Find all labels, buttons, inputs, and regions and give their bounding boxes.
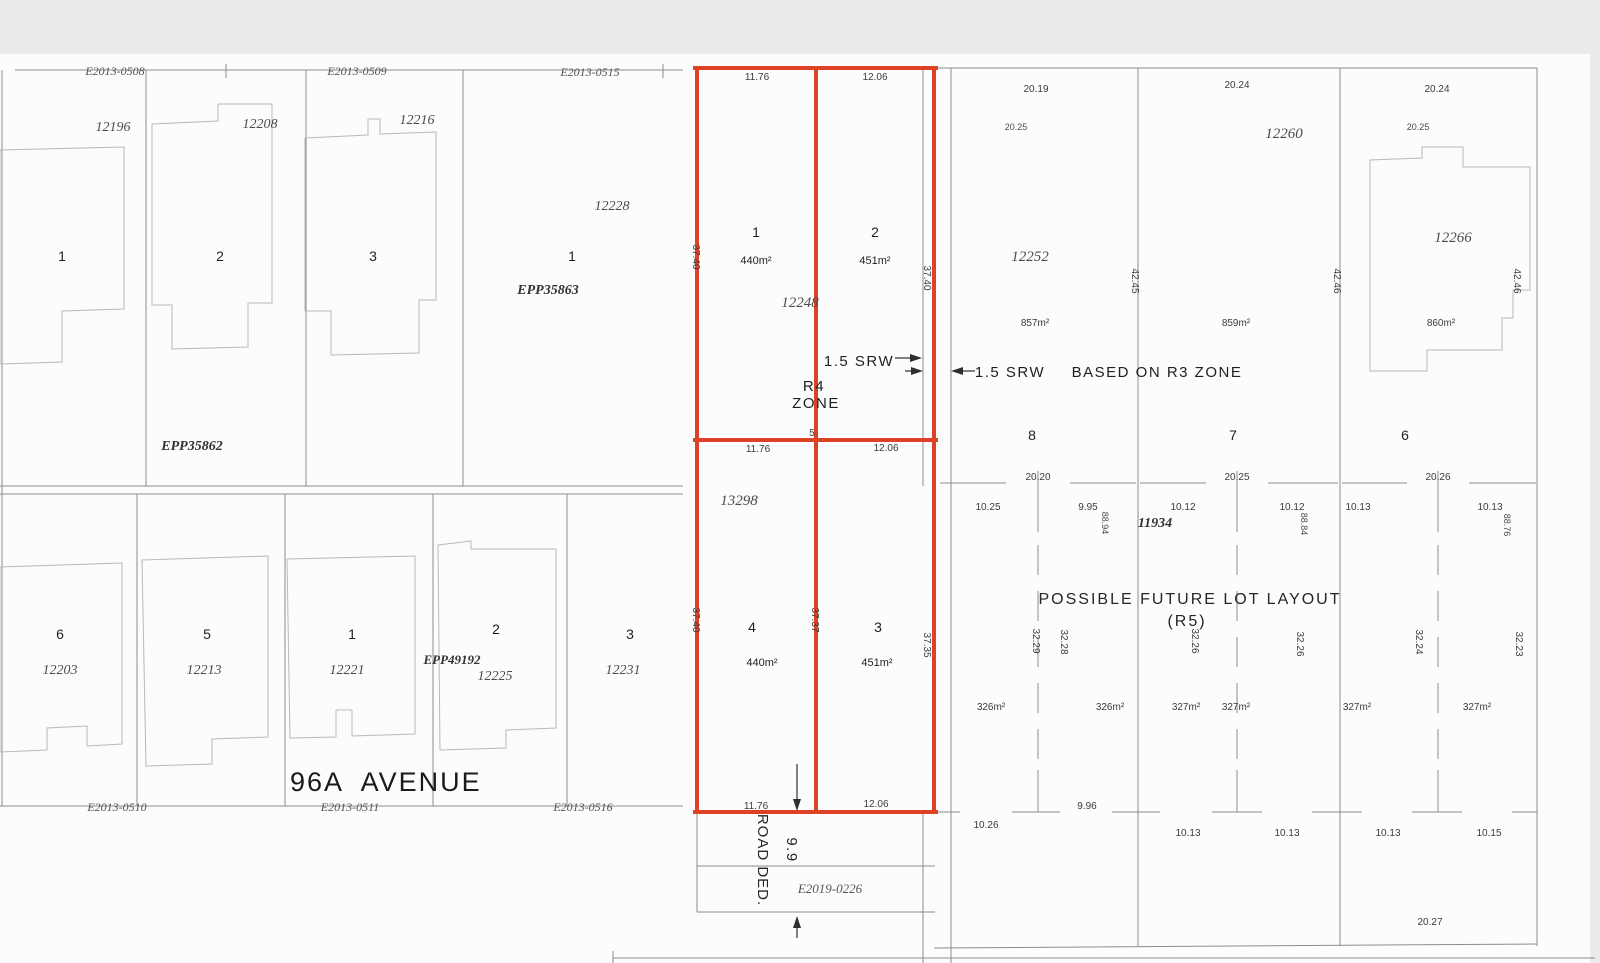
lot-number: 2	[492, 621, 500, 637]
lot-address: 12221	[330, 663, 365, 678]
lot-address-13298: 13298	[720, 493, 758, 509]
lot-area: 857m²	[1021, 318, 1050, 329]
dim-front: 20.19	[1023, 84, 1048, 95]
dim-front: 20.24	[1424, 84, 1449, 95]
lot-address: 12231	[606, 663, 641, 678]
dim-width: 11.76	[745, 72, 770, 83]
lot-address: 12203	[43, 663, 78, 678]
corner-mark: 5	[809, 428, 815, 439]
lot-area: 451m²	[861, 657, 893, 669]
dim-bottom: 10.13	[1274, 828, 1299, 839]
lot-area: 327m²	[1172, 702, 1201, 713]
dim-side: 88.84	[1299, 513, 1309, 536]
dim-half: 10.12	[1170, 502, 1195, 513]
lot-address-11934: 11934	[1138, 516, 1172, 531]
lot-area: 440m²	[746, 657, 778, 669]
lot-address-12248: 12248	[781, 295, 819, 311]
lot-area: 327m²	[1343, 702, 1372, 713]
dim-depth: 42.46	[1331, 268, 1342, 293]
lot-address: 12260	[1265, 126, 1303, 142]
dim-depth: 37.40	[690, 607, 701, 632]
plan-ref-road: E2019-0226	[797, 881, 863, 896]
dim-width: 11.76	[746, 444, 771, 455]
dim-half: 10.12	[1279, 502, 1304, 513]
plan-ref-bottom-center: E2013-0511	[320, 800, 379, 814]
dim-top: 20.26	[1425, 472, 1450, 483]
lot-address: 12228	[595, 199, 630, 214]
lot-area: 859m²	[1222, 318, 1251, 329]
zone-label-zone: ZONE	[792, 395, 840, 412]
dim-width: 12.06	[862, 72, 887, 83]
dim-depth: 42.46	[1511, 268, 1522, 293]
dim-side: 88.76	[1502, 514, 1512, 537]
dim-depth: 37.40	[690, 244, 701, 269]
lot-address: 12225	[478, 669, 513, 684]
zone-note-r3: BASED ON R3 ZONE	[1072, 364, 1243, 381]
dim-half: 10.13	[1477, 502, 1502, 513]
lot-number: 7	[1229, 427, 1237, 443]
plan-ref-top-left: E2013-0508	[84, 64, 144, 78]
dim-depth: 32.28	[1058, 629, 1069, 654]
lot-number: 2	[216, 248, 224, 264]
plan-label-epp35863: EPP35863	[516, 283, 578, 298]
lot-number: 6	[56, 626, 64, 642]
road-width-dim: 9.9	[783, 837, 800, 862]
lot-address: 12196	[96, 120, 131, 135]
dim-depth: 42.45	[1129, 268, 1140, 293]
srw-label-left: 1.5 SRW	[824, 353, 894, 370]
plan-label-epp35862: EPP35862	[160, 439, 222, 454]
dim-depth: 32.24	[1413, 629, 1424, 654]
page-margin-top	[0, 0, 1600, 54]
dim-width: 12.06	[873, 443, 898, 454]
dim-half: 10.13	[1345, 502, 1370, 513]
dim-width: 12.06	[863, 799, 888, 810]
lot-area: 326m²	[1096, 702, 1125, 713]
dim-half: 9.95	[1078, 502, 1098, 513]
road-dedication-label: ROAD DED.	[754, 814, 771, 906]
lot-number: 3	[874, 619, 882, 635]
dim-depth: 37.35	[921, 632, 932, 657]
dim-front-inner: 20.25	[1407, 122, 1430, 132]
plan-label-epp49192: EPP49192	[422, 652, 481, 667]
lot-address: 12216	[400, 113, 435, 128]
dim-side: 88.94	[1100, 512, 1110, 535]
srw-label-right: 1.5 SRW	[975, 364, 1045, 381]
dim-depth: 32.26	[1189, 628, 1200, 653]
lot-area: 327m²	[1463, 702, 1492, 713]
dim-front-inner: 20.25	[1005, 122, 1028, 132]
lot-address: 12208	[243, 117, 278, 132]
future-layout-subtitle: (R5)	[1167, 613, 1206, 630]
future-layout-title: POSSIBLE FUTURE LOT LAYOUT	[1038, 591, 1341, 608]
lot-number: 1	[58, 248, 66, 264]
lot-number: 3	[369, 248, 377, 264]
dim-bottom: 9.96	[1077, 801, 1097, 812]
dim-width: 11.76	[744, 801, 769, 812]
plan-ref-top-center: E2013-0509	[326, 64, 386, 78]
lot-address: 12213	[187, 663, 222, 678]
lot-number: 1	[348, 626, 356, 642]
dim-bottom: 10.13	[1175, 828, 1200, 839]
dim-south: 20.27	[1417, 917, 1442, 928]
dim-depth: 37.37	[809, 607, 820, 632]
survey-plan-map: E2013-0508 E2013-0509 E2013-0515 E2013-0…	[0, 0, 1600, 963]
lot-area: 451m²	[859, 255, 891, 267]
lot-number: 2	[871, 224, 879, 240]
lot-area: 440m²	[740, 255, 772, 267]
zone-label-r4: R4	[803, 378, 825, 395]
lot-number: 5	[203, 626, 211, 642]
dim-bottom: 10.13	[1375, 828, 1400, 839]
dim-depth: 32.23	[1513, 631, 1524, 656]
lot-address: 12252	[1011, 249, 1049, 265]
lot-number: 3	[626, 626, 634, 642]
lot-number: 4	[748, 619, 756, 635]
plan-ref-bottom-left: E2013-0510	[86, 800, 146, 814]
lot-number: 8	[1028, 427, 1036, 443]
street-name: 96A AVENUE	[290, 767, 482, 797]
dim-half: 10.25	[975, 502, 1000, 513]
dim-top: 20.25	[1224, 472, 1249, 483]
lot-number: 1	[568, 248, 576, 264]
plan-ref-bottom-right: E2013-0516	[552, 800, 612, 814]
lot-address: 12266	[1434, 230, 1472, 246]
lot-number: 6	[1401, 427, 1409, 443]
dim-depth: 32.26	[1294, 631, 1305, 656]
lot-area: 860m²	[1427, 318, 1456, 329]
dim-depth: 32.29	[1030, 628, 1041, 653]
dim-bottom: 10.15	[1476, 828, 1501, 839]
dim-depth: 37.40	[921, 265, 932, 290]
lot-area: 327m²	[1222, 702, 1251, 713]
lot-area: 326m²	[977, 702, 1006, 713]
lot-number: 1	[752, 224, 760, 240]
dim-bottom: 10.26	[973, 820, 998, 831]
plan-ref-top-right: E2013-0515	[559, 65, 619, 79]
dim-top: 20.20	[1025, 472, 1050, 483]
dim-front: 20.24	[1224, 80, 1249, 91]
